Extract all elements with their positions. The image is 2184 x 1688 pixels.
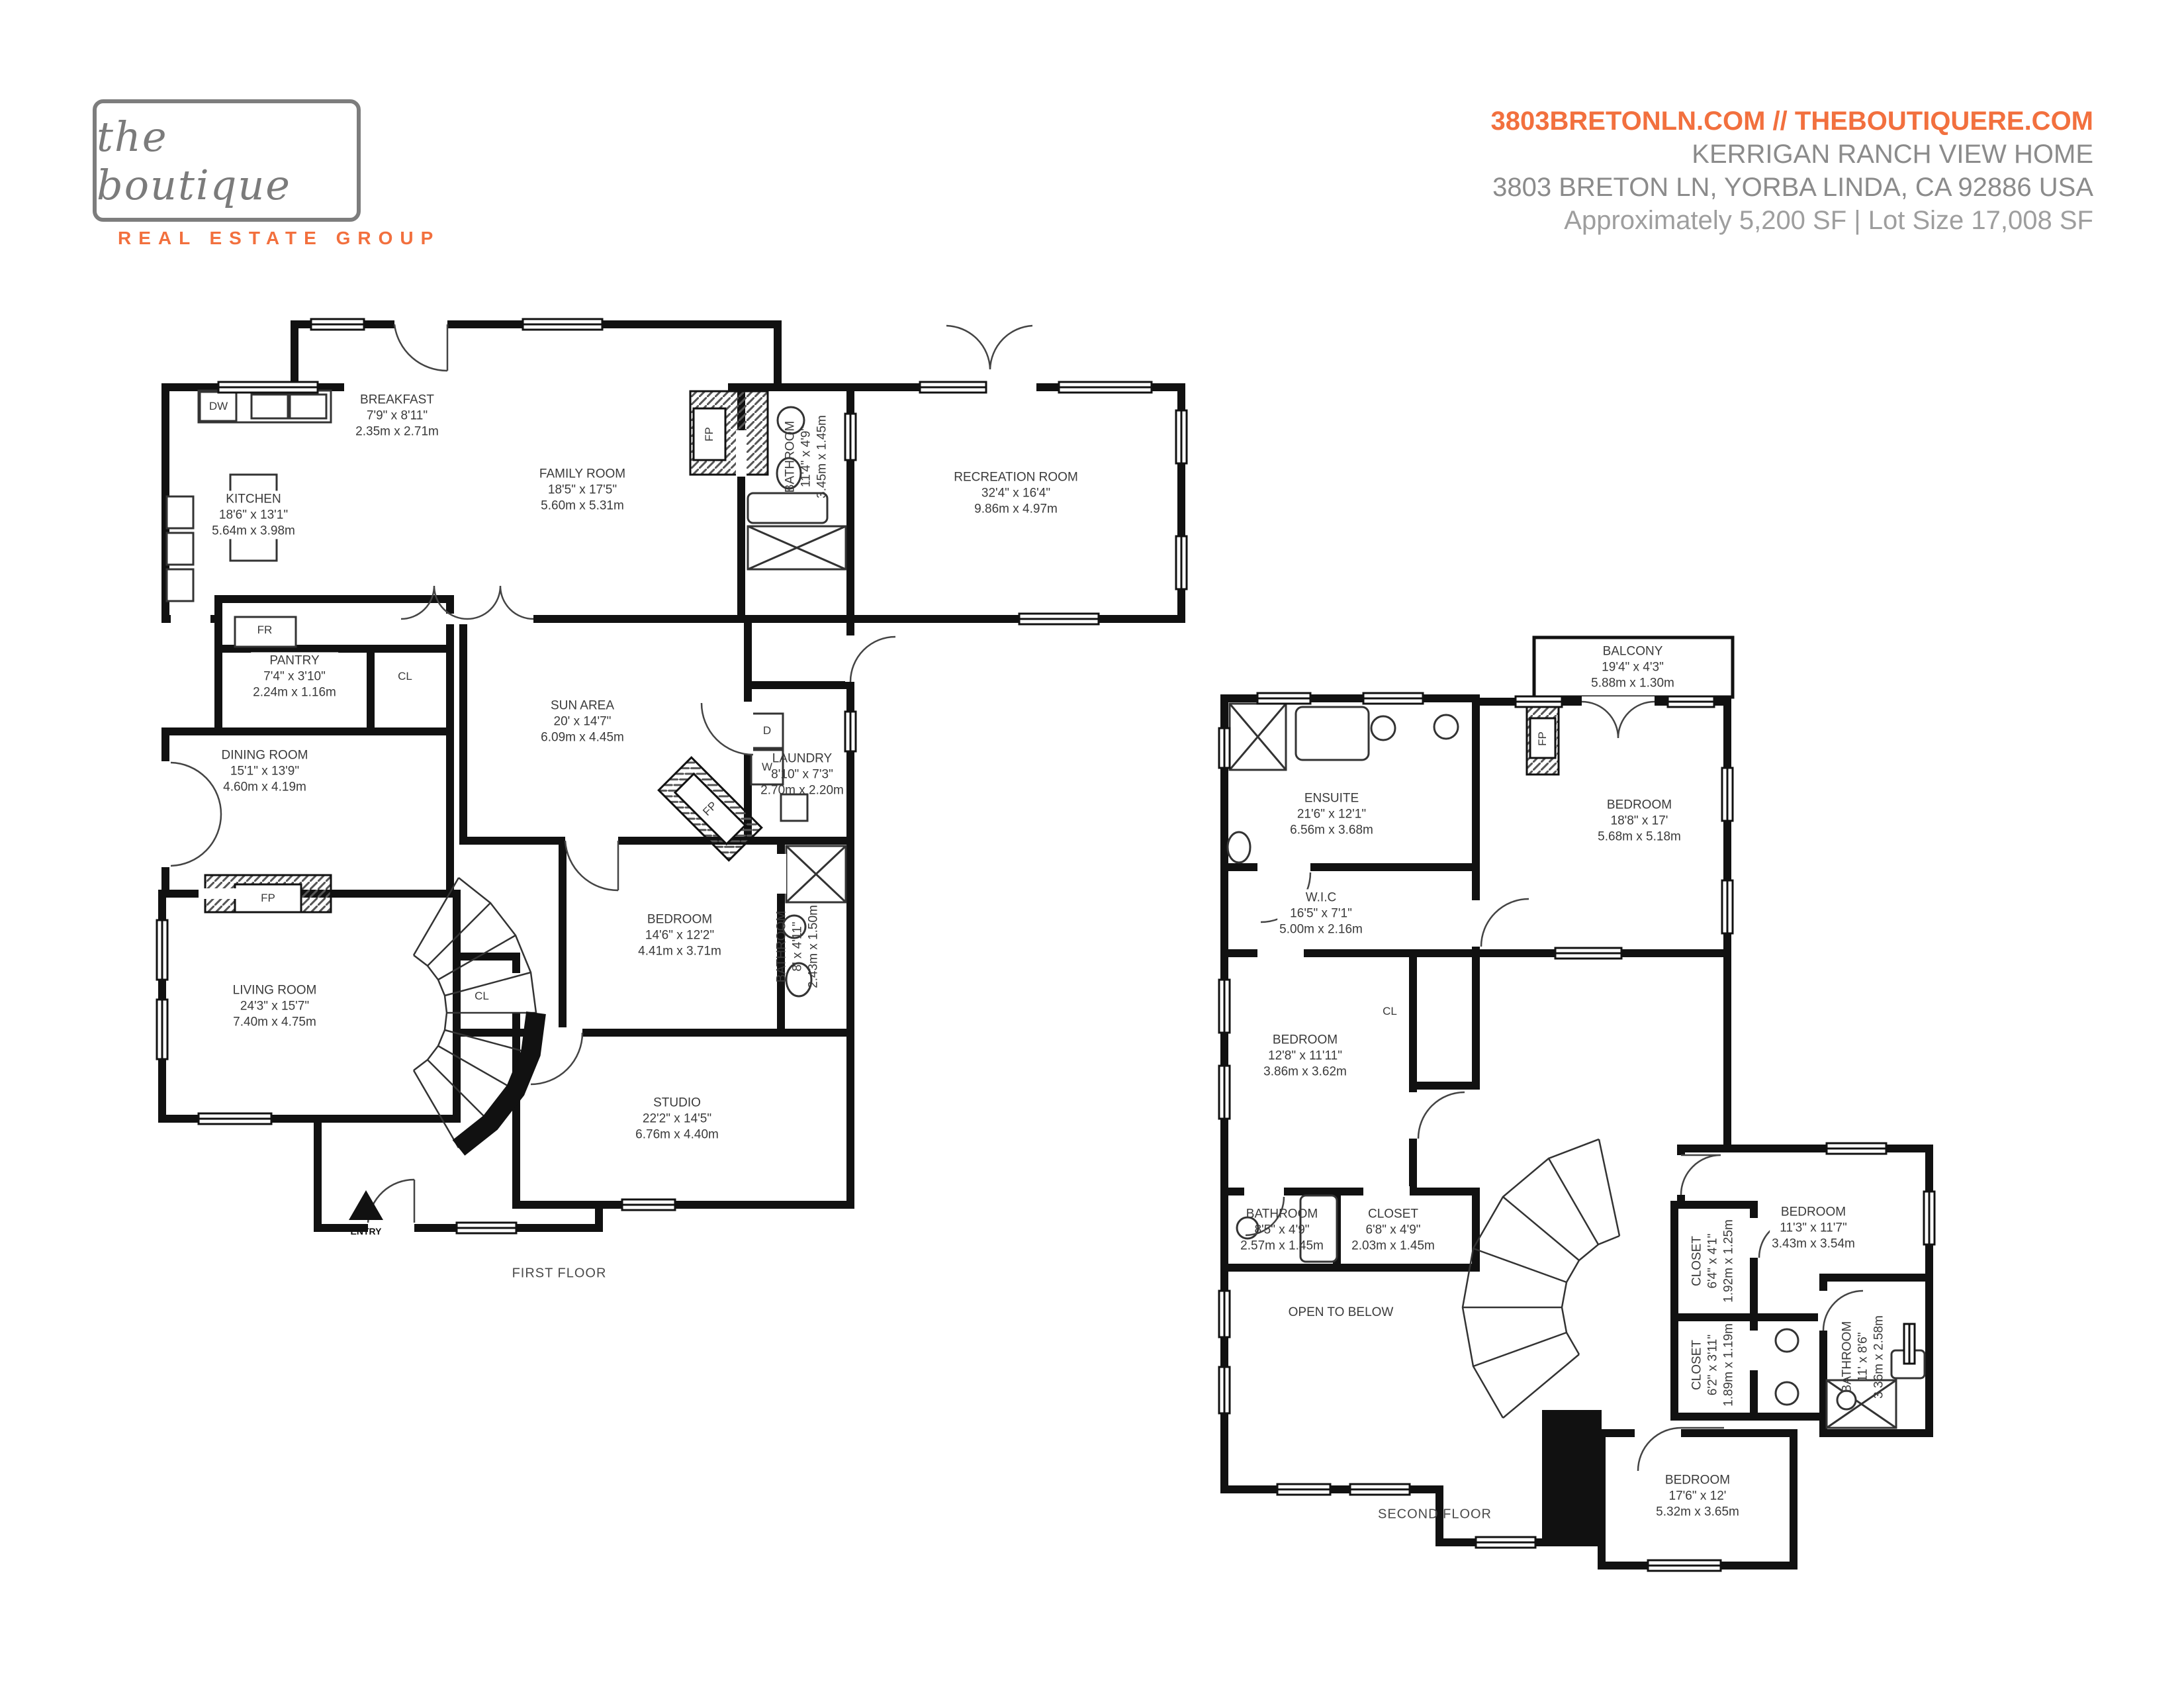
room-name: BATHROOM [774, 905, 790, 988]
closet-mark-sf: CL [1383, 1005, 1397, 1018]
room-label-family-room: FAMILY ROOM 18'5" x 17'5" 5.60m x 5.31m [537, 465, 627, 514]
room-dims-ft: 21'6" x 12'1" [1290, 806, 1373, 822]
room-dims-m: 1.92m x 1.25m [1721, 1219, 1737, 1303]
room-name: BREAKFAST [355, 392, 439, 408]
room-label-bedroom-master: BEDROOM 18'8" x 17' 5.68m x 5.18m [1596, 796, 1683, 845]
dishwasher-mark: DW [209, 400, 228, 413]
room-dims-m: 5.00m x 2.16m [1279, 921, 1363, 937]
second-floor-caption: SECOND FLOOR [1378, 1507, 1492, 1523]
room-name: BATHROOM [1240, 1206, 1324, 1222]
room-dims-m: 2.24m x 1.16m [253, 684, 336, 700]
room-label-recreation: RECREATION ROOM 32'4" x 16'4" 9.86m x 4.… [952, 469, 1080, 517]
room-dims-ft: 12'8" x 11'11" [1263, 1048, 1347, 1064]
fridge-mark: FR [257, 624, 273, 637]
room-label-bedroom-11: BEDROOM 11'3" x 11'7" 3.43m x 3.54m [1770, 1203, 1857, 1252]
room-name: W.I.C [1279, 890, 1363, 906]
washer-mark: W [762, 761, 772, 774]
room-dims-ft: 18'5" x 17'5" [539, 482, 625, 498]
room-dims-m: 5.32m x 3.65m [1656, 1504, 1739, 1520]
room-name: ENSUITE [1290, 790, 1373, 806]
room-dims-m: 4.60m x 4.19m [222, 779, 308, 795]
room-label-bedroom-17: BEDROOM 17'6" x 12' 5.32m x 3.65m [1654, 1472, 1741, 1520]
room-dims-m: 5.88m x 1.30m [1591, 675, 1674, 691]
entry-arrow-icon [349, 1190, 383, 1220]
room-dims-ft: 16'5" x 7'1" [1279, 906, 1363, 921]
room-dims-m: 1.89m x 1.19m [1721, 1323, 1737, 1407]
room-dims-ft: 20' x 14'7" [541, 714, 624, 729]
room-label-laundry: LAUNDRY 8'10" x 7'3" 2.70m x 2.20m [758, 750, 846, 798]
room-dims-ft: 32'4" x 16'4" [954, 485, 1078, 501]
room-dims-m: 6.56m x 3.68m [1290, 822, 1373, 838]
room-dims-ft: 14'6" x 12'2" [638, 927, 721, 943]
closet-mark-pantry: CL [398, 670, 412, 683]
room-dims-m: 2.70m x 2.20m [760, 782, 844, 798]
room-label-kitchen: KITCHEN 18'6" x 13'1" 5.64m x 3.98m [210, 491, 297, 539]
room-dims-ft: 6'4" x 4'1" [1705, 1219, 1721, 1303]
room-dims-m: 6.76m x 4.40m [635, 1127, 719, 1143]
room-dims-ft: 7'9" x 8'11" [355, 408, 439, 424]
room-dims-ft: 6'2" x 3'11" [1705, 1323, 1721, 1407]
room-label-living: LIVING ROOM 24'3" x 15'7" 7.40m x 4.75m [231, 982, 319, 1030]
room-label-bathroom-mid: BATHROOM 8' x 4'11" 2.43m x 1.50m [773, 903, 821, 990]
room-name: LAUNDRY [760, 751, 844, 767]
room-dims-m: 2.43m x 1.50m [805, 905, 821, 988]
room-name: LIVING ROOM [233, 982, 317, 998]
room-dims-m: 3.45m x 1.45m [814, 415, 830, 498]
room-name: CLOSET [1689, 1323, 1705, 1407]
room-label-pantry: PANTRY 7'4" x 3'10" 2.24m x 1.16m [251, 652, 338, 700]
open-to-below-label: OPEN TO BELOW [1287, 1304, 1396, 1321]
room-dims-ft: 11'4" x 4'9" [798, 415, 814, 498]
room-name: PANTRY [253, 653, 336, 669]
room-dims-ft: 8' x 4'11" [790, 905, 805, 988]
room-dims-ft: 19'4" x 4'3" [1591, 659, 1674, 675]
room-dims-ft: 24'3" x 15'7" [233, 998, 317, 1014]
fireplace-mark-dining: FP [261, 892, 275, 905]
room-label-studio: STUDIO 22'2" x 14'5" 6.76m x 4.40m [633, 1094, 721, 1143]
room-dims-ft: 11' x 8'6" [1855, 1315, 1871, 1399]
room-dims-ft: 11'3" x 11'7" [1772, 1220, 1855, 1236]
room-dims-m: 3.43m x 3.54m [1772, 1236, 1855, 1252]
room-dims-m: 7.40m x 4.75m [233, 1014, 317, 1030]
room-name: SUN AREA [541, 698, 624, 714]
room-name: BATHROOM [782, 415, 798, 498]
room-dims-m: 4.41m x 3.71m [638, 943, 721, 959]
room-name: KITCHEN [212, 491, 295, 507]
room-label-ensuite: ENSUITE 21'6" x 12'1" 6.56m x 3.68m [1288, 790, 1375, 838]
room-label-wic: W.I.C 16'5" x 7'1" 5.00m x 2.16m [1277, 889, 1365, 937]
room-name: BEDROOM [638, 912, 721, 927]
room-label-bathroom-11: BATHROOM 11' x 8'6" 3.36m x 2.58m [1839, 1313, 1887, 1401]
fireplace-mark-master: FP [1536, 731, 1549, 746]
room-name: BEDROOM [1598, 797, 1681, 813]
room-dims-ft: 6'8" x 4'9" [1351, 1222, 1435, 1238]
room-label-bathroom-upper: BATHROOM 11'4" x 4'9" 3.45m x 1.45m [782, 413, 830, 500]
first-floor-caption: FIRST FLOOR [512, 1266, 607, 1282]
room-dims-m: 2.35m x 2.71m [355, 424, 439, 440]
room-label-breakfast: BREAKFAST 7'9" x 8'11" 2.35m x 2.71m [353, 391, 441, 440]
room-dims-ft: 7'4" x 3'10" [253, 669, 336, 684]
room-name: BALCONY [1591, 643, 1674, 659]
room-dims-m: 5.60m x 5.31m [539, 498, 625, 514]
room-name: BEDROOM [1656, 1472, 1739, 1488]
room-dims-ft: 22'2" x 14'5" [635, 1111, 719, 1127]
room-label-closet-62: CLOSET 6'2" x 3'11" 1.89m x 1.19m [1688, 1321, 1737, 1409]
closet-mark-stairs: CL [475, 990, 489, 1003]
room-dims-ft: 15'1" x 13'9" [222, 763, 308, 779]
room-dims-m: 2.03m x 1.45m [1351, 1238, 1435, 1254]
floor-plan-drawing [0, 0, 2184, 1688]
room-name: FAMILY ROOM [539, 466, 625, 482]
room-name: BEDROOM [1263, 1032, 1347, 1048]
room-name: BEDROOM [1772, 1204, 1855, 1220]
room-dims-ft: 8'10" x 7'3" [760, 767, 844, 782]
room-dims-m: 9.86m x 4.97m [954, 501, 1078, 517]
room-name: BATHROOM [1839, 1315, 1855, 1399]
room-name: OPEN TO BELOW [1289, 1305, 1394, 1321]
entry-label: ENTRY [351, 1226, 382, 1237]
room-dims-m: 6.09m x 4.45m [541, 729, 624, 745]
room-dims-m: 3.86m x 3.62m [1263, 1064, 1347, 1080]
room-name: DINING ROOM [222, 747, 308, 763]
room-dims-ft: 8'5" x 4'9" [1240, 1222, 1324, 1238]
room-dims-ft: 18'6" x 13'1" [212, 507, 295, 523]
dryer-mark: D [763, 724, 771, 737]
room-name: CLOSET [1351, 1206, 1435, 1222]
room-label-bedroom-ff: BEDROOM 14'6" x 12'2" 4.41m x 3.71m [636, 911, 723, 959]
room-name: STUDIO [635, 1095, 719, 1111]
room-label-balcony: BALCONY 19'4" x 4'3" 5.88m x 1.30m [1589, 643, 1676, 691]
room-label-closet-64: CLOSET 6'4" x 4'1" 1.92m x 1.25m [1688, 1217, 1737, 1305]
room-dims-m: 5.68m x 5.18m [1598, 829, 1681, 845]
room-dims-ft: 17'6" x 12' [1656, 1488, 1739, 1504]
floor-plan-sheet: the boutique REAL ESTATE GROUP 3803BRETO… [0, 0, 2184, 1688]
room-label-sun-area: SUN AREA 20' x 14'7" 6.09m x 4.45m [539, 697, 626, 745]
fireplace-mark-family: FP [703, 427, 716, 442]
room-name: CLOSET [1689, 1219, 1705, 1303]
room-label-closet-68: CLOSET 6'8" x 4'9" 2.03m x 1.45m [1349, 1205, 1437, 1254]
room-label-dining: DINING ROOM 15'1" x 13'9" 4.60m x 4.19m [220, 747, 310, 795]
second-floor-stairs [1463, 1139, 1619, 1542]
room-dims-m: 3.36m x 2.58m [1871, 1315, 1887, 1399]
room-dims-m: 5.64m x 3.98m [212, 523, 295, 539]
room-dims-ft: 18'8" x 17' [1598, 813, 1681, 829]
room-label-bathroom-85: BATHROOM 8'5" x 4'9" 2.57m x 1.45m [1238, 1205, 1326, 1254]
room-label-bedroom-mid: BEDROOM 12'8" x 11'11" 3.86m x 3.62m [1261, 1031, 1349, 1080]
room-dims-m: 2.57m x 1.45m [1240, 1238, 1324, 1254]
room-name: RECREATION ROOM [954, 469, 1078, 485]
